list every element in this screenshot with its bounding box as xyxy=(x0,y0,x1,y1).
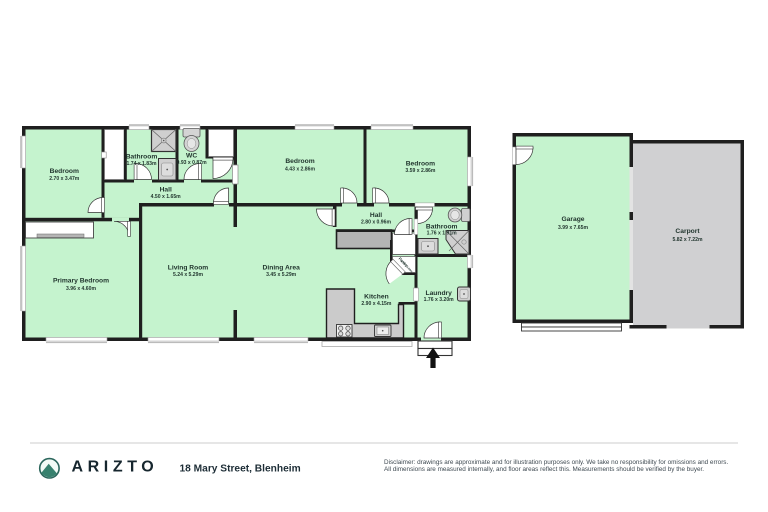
svg-text:4.43 x 2.86m: 4.43 x 2.86m xyxy=(285,167,315,173)
svg-text:Bedroom: Bedroom xyxy=(406,160,435,167)
svg-text:3.99 x 7.65m: 3.99 x 7.65m xyxy=(558,225,588,231)
svg-text:1.76 x 3.20m: 1.76 x 3.20m xyxy=(424,297,454,303)
svg-text:Hall: Hall xyxy=(370,212,382,219)
svg-text:4.50 x 1.65m: 4.50 x 1.65m xyxy=(151,194,181,200)
svg-text:WC: WC xyxy=(186,153,197,160)
svg-text:Bedroom: Bedroom xyxy=(285,158,314,165)
svg-text:Carport: Carport xyxy=(675,228,700,235)
svg-text:Primary Bedroom: Primary Bedroom xyxy=(53,278,109,285)
svg-text:Bedroom: Bedroom xyxy=(50,168,79,175)
svg-text:Bathroom: Bathroom xyxy=(126,154,158,161)
svg-text:2.90 x 4.15m: 2.90 x 4.15m xyxy=(361,301,391,307)
svg-text:Hall: Hall xyxy=(160,187,172,194)
svg-text:3.96 x 4.60m: 3.96 x 4.60m xyxy=(66,286,96,292)
svg-text:Disclaimer: drawings are appro: Disclaimer: drawings are approximate and… xyxy=(384,459,728,466)
svg-text:0.93 x 0.87m: 0.93 x 0.87m xyxy=(177,160,207,166)
svg-text:1.74 x 1.83m: 1.74 x 1.83m xyxy=(126,161,156,167)
svg-text:1.76 x 1.91m: 1.76 x 1.91m xyxy=(427,231,457,237)
svg-text:5.82 x 7.22m: 5.82 x 7.22m xyxy=(672,237,702,243)
svg-text:Laundry: Laundry xyxy=(426,290,453,297)
svg-text:5.24 x 5.29m: 5.24 x 5.29m xyxy=(173,272,203,278)
svg-text:ARIZTO: ARIZTO xyxy=(72,459,159,476)
svg-text:Living Room: Living Room xyxy=(168,265,209,272)
svg-text:18 Mary Street, Blenheim: 18 Mary Street, Blenheim xyxy=(180,464,301,475)
svg-text:Dining Area: Dining Area xyxy=(263,265,301,272)
svg-text:Garage: Garage xyxy=(561,216,584,223)
svg-text:3.59 x 2.86m: 3.59 x 2.86m xyxy=(405,168,435,174)
svg-text:3.45 x 5.29m: 3.45 x 5.29m xyxy=(266,272,296,278)
svg-text:2.80 x 0.96m: 2.80 x 0.96m xyxy=(361,220,391,226)
svg-text:All dimensions are measured in: All dimensions are measured internally, … xyxy=(384,466,704,473)
svg-text:2.70 x 3.47m: 2.70 x 3.47m xyxy=(49,176,79,182)
svg-text:Bathroom: Bathroom xyxy=(426,224,458,231)
svg-text:Kitchen: Kitchen xyxy=(364,294,389,301)
